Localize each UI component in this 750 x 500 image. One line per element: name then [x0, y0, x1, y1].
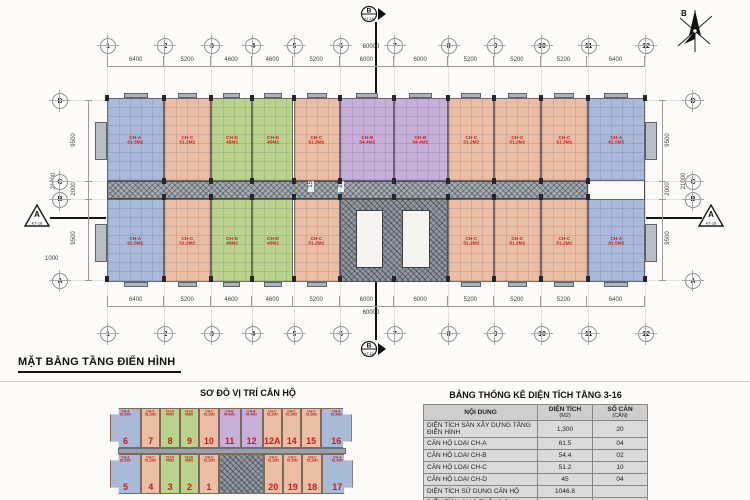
locator-unit: CH-D45M22 — [180, 454, 199, 494]
dim-line-vertical — [662, 100, 663, 280]
plan-unit: CH-C51.2M2 — [448, 199, 495, 282]
north-arrow-icon: B — [672, 6, 718, 56]
table-cell: 1046.8 — [538, 486, 593, 498]
svg-text:A: A — [34, 210, 40, 219]
dim-segment: 5200 — [541, 296, 588, 306]
balcony-tab — [124, 282, 148, 287]
locator-unit-area: 51.2M2 — [286, 413, 297, 416]
balcony-tab — [307, 93, 327, 98]
table-cell: 61.5 — [538, 438, 593, 450]
axis-circle-left: C — [52, 174, 68, 190]
unit-area: 61.5M2 — [128, 241, 144, 246]
locator-diagram: CH-A61.5M26CH-C51.2M27CH-D45M28CH-D45M29… — [102, 400, 364, 500]
svg-text:KT-18: KT-18 — [706, 221, 717, 226]
balcony-right-lower — [645, 224, 657, 262]
unit-label: CH-C51.2M2 — [309, 135, 325, 145]
locator-unit-number: 1 — [206, 483, 211, 492]
table-header-cell: NỘI DUNG — [424, 405, 538, 421]
locator-unit: CH-C51.2M219 — [283, 454, 302, 494]
locator-unit: CH-C51.2M220 — [264, 454, 283, 494]
locator-unit-number: 11 — [225, 437, 235, 446]
plan-unit: CH-C51.2M2 — [294, 199, 341, 282]
core-block — [340, 199, 448, 282]
balcony-tab — [264, 93, 281, 98]
locator-unit-type: CH-C51.2M2 — [287, 456, 298, 462]
axis-circle-left: B — [52, 192, 68, 208]
axis-gridline-v — [394, 52, 395, 328]
unit-label: CH-C51.2M2 — [510, 236, 526, 246]
column-mark — [392, 178, 396, 184]
unit-label: CH-D45M2 — [226, 135, 238, 145]
table-row: CĂN HỘ LOẠI CH-B54.402 — [424, 450, 648, 462]
unit-area: 54.4M2 — [413, 140, 429, 145]
column-mark — [250, 95, 254, 101]
dim-line-vertical — [88, 100, 89, 280]
table-cell: 02 — [593, 450, 648, 462]
locator-unit-type: CH-C51.2M2 — [306, 456, 317, 462]
elevator-shaft — [402, 210, 429, 268]
table-cell: 04 — [593, 438, 648, 450]
locator-unit-number: 7 — [148, 437, 153, 446]
locator-unit-type: CH-C51.2M2 — [145, 410, 156, 416]
unit-area: 51.2M2 — [556, 241, 572, 246]
drawing-sheet: 60000 60000 21000 21000 1000 1500 2700 3… — [0, 0, 750, 500]
axis-circle-bottom: 12 — [638, 326, 654, 342]
table-cell: CĂN HỘ LOẠI CH-A — [424, 438, 538, 450]
unit-area: 54.4M2 — [359, 140, 375, 145]
table-row: CĂN HỘ LOẠI CH-D4504 — [424, 474, 648, 486]
balcony-tab — [307, 282, 327, 287]
balcony-left-lower — [95, 224, 107, 262]
unit-area: 51.2M2 — [180, 241, 196, 246]
table-row: DIỆN TÍCH SÀN XÂY DỰNG TẦNG ĐIỂN HÌNH1,3… — [424, 421, 648, 438]
axis-circle-bottom: 4 — [245, 326, 261, 342]
dim-segment: 5200 — [448, 56, 495, 66]
locator-unit-area: 54.4M2 — [246, 413, 257, 416]
locator-unit-type: CH-C51.2M2 — [203, 456, 214, 462]
column-mark — [392, 276, 396, 282]
locator-unit: CH-A61.5M217 — [322, 454, 353, 494]
column-mark — [492, 194, 496, 200]
column-mark — [162, 95, 166, 101]
unit-label: CH-C51.2M2 — [463, 236, 479, 246]
stats-table-wrap: NỘI DUNGDIỆN TÍCH(M2)SỐ CĂN(CĂN)DIỆN TÍC… — [423, 404, 648, 500]
plan-unit: CH-C51.2M2 — [164, 199, 211, 282]
axis-circle-bottom: 2 — [157, 326, 173, 342]
section-marker-a-left: A KT-18 — [24, 204, 50, 228]
balcony-tab — [124, 93, 148, 98]
locator-unit-number: 6 — [123, 437, 128, 446]
locator-unit-area: 61.5M2 — [331, 413, 342, 416]
axis-gridline-v — [211, 52, 212, 328]
locator-unit-number: 12 — [247, 437, 257, 446]
table-cell: 1,300 — [538, 421, 593, 438]
plan-unit: CH-B54.4M2 — [340, 98, 394, 181]
axis-gridline-v — [448, 52, 449, 328]
plan-unit: CH-A61.5M2 — [588, 199, 645, 282]
dim-segment: 5200 — [448, 296, 495, 306]
table-header-cell: DIỆN TÍCH(M2) — [538, 405, 593, 421]
header-line1: NỘI DUNG — [427, 409, 534, 416]
table-cell: CĂN HỘ LOẠI CH-B — [424, 450, 538, 462]
table-cell: 54.4 — [538, 450, 593, 462]
dim-label-vertical: 9500 — [71, 226, 77, 250]
locator-unit-type: CH-A61.5M2 — [331, 410, 342, 416]
column-mark — [446, 276, 450, 282]
axis-circle-bottom: 9 — [487, 326, 503, 342]
locator-unit-type: CH-D45M2 — [166, 410, 174, 416]
locator-title: SƠ ĐỒ VỊ TRÍ CĂN HỘ — [128, 388, 368, 398]
locator-unit: CH-B54.4M211 — [219, 408, 241, 448]
locator-unit: CH-B54.4M212 — [241, 408, 263, 448]
unit-label: CH-C51.2M2 — [556, 135, 572, 145]
dim-segment: 6000 — [394, 296, 448, 306]
axis-gridline-v — [494, 52, 495, 328]
locator-unit: CH-A61.5M25 — [110, 454, 141, 494]
plan-unit: CH-A61.5M2 — [588, 98, 645, 181]
locator-unit-area: 45M2 — [166, 413, 174, 416]
locator-unit-type: CH-D45M2 — [185, 456, 193, 462]
table-row: DIỆN TÍCH SỬ DỤNG CĂN HỘ1046.8 — [424, 486, 648, 498]
table-row: CĂN HỘ LOẠI CH-A61.504 — [424, 438, 648, 450]
locator-unit: CH-C51.2M218 — [302, 454, 321, 494]
locator-unit-type: CH-C51.2M2 — [286, 410, 297, 416]
column-mark — [586, 95, 590, 101]
locator-unit-area: 45M2 — [185, 413, 193, 416]
unit-area: 51.2M2 — [463, 241, 479, 246]
axis-circle-bottom: 3 — [204, 326, 220, 342]
dim-tick — [85, 181, 92, 182]
locator-unit-type: CH-C51.2M2 — [203, 410, 214, 416]
dim-segment: 5200 — [164, 56, 211, 66]
locator-unit-area: 51.2M2 — [203, 413, 214, 416]
dim-aux-1000: 1000 — [44, 256, 59, 262]
axis-circle-right: D — [685, 93, 701, 109]
column-mark — [209, 95, 213, 101]
locator-unit: CH-C51.2M212A — [263, 408, 282, 448]
table-header-row: NỘI DUNGDIỆN TÍCH(M2)SỐ CĂN(CĂN) — [424, 405, 648, 421]
locator-unit-type: CH-B54.4M2 — [224, 410, 235, 416]
plan-unit: CH-D45M2 — [211, 199, 252, 282]
table-cell: DIỆN TÍCH SÀN XÂY DỰNG TẦNG ĐIỂN HÌNH — [424, 421, 538, 438]
locator-unit-area: 54.4M2 — [224, 413, 235, 416]
unit-label: CH-C51.2M2 — [180, 236, 196, 246]
dim-row-top: 6400520046004600520060006000520052005200… — [107, 56, 645, 67]
axis-gridline-v — [340, 52, 341, 328]
unit-area: 61.5M2 — [608, 140, 624, 145]
locator-unit-type: CH-C51.2M2 — [267, 410, 278, 416]
dim-segment: 4600 — [252, 56, 293, 66]
locator-unit-type: CH-D45M2 — [185, 410, 193, 416]
balcony-right-upper — [645, 122, 657, 160]
unit-area: 61.5M2 — [608, 241, 624, 246]
header-line1: SỐ CĂN — [596, 406, 644, 413]
table-cell: 45 — [538, 474, 593, 486]
column-mark — [209, 178, 213, 184]
locator-unit-area: 51.2M2 — [267, 413, 278, 416]
unit-label: CH-C51.2M2 — [556, 236, 572, 246]
plan-unit: CH-A61.5M2 — [107, 98, 164, 181]
table-cell: DIỆN TÍCH SỬ DỤNG CĂN HỘ — [424, 486, 538, 498]
balcony-tab — [604, 93, 628, 98]
locator-unit-area: 51.2M2 — [306, 459, 317, 462]
column-mark — [292, 95, 296, 101]
plan-unit: CH-C51.2M2 — [541, 98, 588, 181]
table-cell: 20 — [593, 421, 648, 438]
column-mark — [209, 276, 213, 282]
table-cell: 10 — [593, 462, 648, 474]
plan-unit: CH-C51.2M2 — [494, 98, 541, 181]
table-cell — [593, 486, 648, 498]
dim-segment: 6400 — [107, 296, 164, 306]
header-line2: (CĂN) — [596, 413, 644, 419]
dim-label-vertical: 9500 — [665, 226, 671, 250]
unit-label: CH-B54.4M2 — [359, 135, 375, 145]
elevator-shaft — [356, 210, 383, 268]
locator-unit-number: 20 — [268, 483, 278, 492]
unit-label: CH-C51.2M2 — [180, 135, 196, 145]
locator-unit-number: 19 — [288, 483, 298, 492]
column-mark — [643, 95, 647, 101]
locator-unit-area: 51.2M2 — [268, 459, 279, 462]
balcony-tab — [409, 93, 432, 98]
unit-label: CH-A61.5M2 — [608, 135, 624, 145]
locator-unit-area: 51.2M2 — [305, 413, 316, 416]
balcony-tab — [356, 93, 379, 98]
locator-unit-type: CH-D45M2 — [166, 456, 174, 462]
dim-tick — [659, 100, 666, 101]
locator-unit-number: 2 — [187, 483, 192, 492]
locator-unit-area: 61.5M2 — [120, 413, 131, 416]
dim-segment: 5200 — [541, 56, 588, 66]
locator-unit: CH-C51.2M214 — [282, 408, 301, 448]
locator-unit-area: 61.5M2 — [120, 459, 131, 462]
locator-unit-number: 18 — [307, 483, 317, 492]
stats-table: NỘI DUNGDIỆN TÍCH(M2)SỐ CĂN(CĂN)DIỆN TÍC… — [423, 404, 648, 500]
table-title: BẢNG THỐNG KÊ DIỆN TÍCH TẦNG 3-16 — [423, 390, 648, 400]
plan-unit: CH-C51.2M2 — [294, 98, 341, 181]
balcony-tab — [178, 93, 198, 98]
locator-unit: CH-C51.2M27 — [141, 408, 160, 448]
dim-label-vertical: 9500 — [71, 128, 77, 152]
unit-label: CH-C51.2M2 — [309, 236, 325, 246]
axis-circle-top: 7 — [387, 38, 403, 54]
unit-area: 45M2 — [267, 241, 279, 246]
plan-unit: CH-C51.2M2 — [448, 98, 495, 181]
column-mark — [250, 276, 254, 282]
column-mark — [105, 276, 109, 282]
section-line-a-right — [646, 217, 702, 219]
unit-area: 51.2M2 — [309, 241, 325, 246]
column-mark — [539, 194, 543, 200]
column-mark — [105, 95, 109, 101]
table-header-cell: SỐ CĂN(CĂN) — [593, 405, 648, 421]
unit-label: CH-A61.5M2 — [608, 236, 624, 246]
plan-unit: CH-D45M2 — [252, 98, 293, 181]
locator-unit: CH-C51.2M210 — [199, 408, 218, 448]
dim-segment: 6400 — [107, 56, 164, 66]
column-mark — [392, 194, 396, 200]
svg-text:KT-18: KT-18 — [32, 221, 43, 226]
column-mark — [492, 95, 496, 101]
unit-label: CH-A61.5M2 — [128, 236, 144, 246]
column-mark — [292, 276, 296, 282]
section-marker-a-right: A KT-18 — [698, 204, 724, 228]
axis-circle-top: 1 — [100, 38, 116, 54]
column-mark — [338, 95, 342, 101]
column-mark — [539, 95, 543, 101]
section-marker-b-bottom: B KT-18 — [360, 340, 388, 358]
axis-circle-top: 2 — [157, 38, 173, 54]
locator-unit-type: CH-A61.5M2 — [332, 456, 343, 462]
table-body: DIỆN TÍCH SÀN XÂY DỰNG TẦNG ĐIỂN HÌNH1,3… — [424, 421, 648, 500]
column-mark — [338, 194, 342, 200]
locator-unit-area: 45M2 — [166, 459, 174, 462]
plan-unit: CH-C51.2M2 — [164, 98, 211, 181]
axis-gridline-v — [541, 52, 542, 328]
balcony-tab — [508, 282, 528, 287]
locator-unit-type: CH-C51.2M2 — [305, 410, 316, 416]
unit-area: 45M2 — [267, 140, 279, 145]
locator-unit: CH-C51.2M24 — [141, 454, 160, 494]
dim-segment: 5200 — [293, 56, 340, 66]
column-mark — [392, 95, 396, 101]
axis-circle-top: 4 — [245, 38, 261, 54]
axis-circle-top: 8 — [441, 38, 457, 54]
axis-circle-right: A — [685, 273, 701, 289]
column-mark — [446, 178, 450, 184]
locator-unit: CH-A61.5M26 — [110, 408, 141, 448]
svg-text:B: B — [367, 343, 372, 350]
table-cell: CĂN HỘ LOẠI CH-D — [424, 474, 538, 486]
dim-segment: 5200 — [494, 56, 541, 66]
locator-unit — [219, 454, 264, 494]
axis-circle-bottom: 11 — [581, 326, 597, 342]
unit-label: CH-D45M2 — [267, 236, 279, 246]
locator-unit-number: 16 — [331, 437, 341, 446]
dim-segment: 6400 — [587, 296, 644, 306]
plan-unit: CH-A61.5M2 — [107, 199, 164, 282]
axis-circle-bottom: 7 — [387, 326, 403, 342]
locator-unit-number: 4 — [148, 483, 153, 492]
axis-gridline-v — [164, 52, 165, 328]
plan-unit: CH-D45M2 — [211, 98, 252, 181]
column-mark — [338, 178, 342, 184]
unit-label: CH-C51.2M2 — [510, 135, 526, 145]
column-mark — [539, 276, 543, 282]
section-line-b-bottom — [375, 282, 377, 340]
locator-unit-type: CH-C51.2M2 — [145, 456, 156, 462]
unit-area: 51.2M2 — [556, 140, 572, 145]
panel-divider — [0, 381, 750, 382]
balcony-tab — [554, 93, 574, 98]
locator-unit-area: 51.2M2 — [287, 459, 298, 462]
column-mark — [586, 194, 590, 200]
axis-circle-right: B — [685, 192, 701, 208]
corridor — [107, 181, 588, 199]
dim-segment: 5200 — [293, 296, 340, 306]
axis-circle-top: 9 — [487, 38, 503, 54]
dim-label-vertical: 2000 — [71, 177, 77, 201]
balcony-tab — [461, 282, 481, 287]
column-mark — [338, 276, 342, 282]
unit-label: CH-C51.2M2 — [463, 135, 479, 145]
section-line-a-left — [50, 217, 106, 219]
locator-unit-number: 10 — [204, 437, 214, 446]
dim-tick — [659, 280, 666, 281]
locator-unit-number: 15 — [306, 437, 316, 446]
axis-circle-bottom: 8 — [441, 326, 457, 342]
locator-unit: CH-D45M28 — [160, 408, 179, 448]
header-line2: (M2) — [541, 413, 589, 419]
unit-area: 51.2M2 — [309, 140, 325, 145]
column-mark — [586, 276, 590, 282]
balcony-tab — [264, 282, 281, 287]
unit-area: 51.2M2 — [510, 241, 526, 246]
balcony-tab — [508, 93, 528, 98]
column-mark — [586, 178, 590, 184]
column-mark — [446, 194, 450, 200]
locator-unit-number: 3 — [168, 483, 173, 492]
dim-segment: 4600 — [252, 296, 293, 306]
dim-segment: 4600 — [211, 56, 252, 66]
locator-unit-number: 5 — [123, 483, 128, 492]
dim-segment: 6400 — [587, 56, 644, 66]
axis-circle-right: C — [685, 174, 701, 190]
column-mark — [292, 178, 296, 184]
table-head: NỘI DUNGDIỆN TÍCH(M2)SỐ CĂN(CĂN) — [424, 405, 648, 421]
dim-segment: 6000 — [340, 56, 394, 66]
locator-unit: CH-D45M29 — [180, 408, 199, 448]
column-mark — [250, 194, 254, 200]
axis-circle-top: 6 — [333, 38, 349, 54]
column-mark — [250, 178, 254, 184]
axis-circle-bottom: 5 — [287, 326, 303, 342]
unit-area: 45M2 — [226, 241, 238, 246]
dim-tick — [85, 199, 92, 200]
locator-unit-type: CH-B54.4M2 — [246, 410, 257, 416]
locator-unit-number: 12A — [264, 437, 281, 446]
unit-area: 61.5M2 — [128, 140, 144, 145]
plan-title: MẶT BẰNG TẦNG ĐIỂN HÌNH — [18, 356, 175, 368]
dim-segment: 6000 — [340, 296, 394, 306]
dim-total-bottom: 60000 — [336, 310, 406, 316]
locator-unit-area: 61.5M2 — [332, 459, 343, 462]
column-mark — [162, 194, 166, 200]
axis-circle-left: D — [52, 93, 68, 109]
plan-unit: CH-C51.2M2 — [541, 199, 588, 282]
column-mark — [162, 178, 166, 184]
locator-unit-area: 51.2M2 — [145, 413, 156, 416]
dim-row-bottom: 6400520046004600520060006000520052005200… — [107, 296, 645, 307]
locator-unit-area: 51.2M2 — [145, 459, 156, 462]
axis-circle-left: A — [52, 273, 68, 289]
unit-area: 45M2 — [226, 140, 238, 145]
table-cell: 04 — [593, 474, 648, 486]
locator-unit-type: CH-C51.2M2 — [268, 456, 279, 462]
table-cell: CĂN HỘ LOẠI CH-C — [424, 462, 538, 474]
table-cell: 51.2 — [538, 462, 593, 474]
column-mark — [292, 194, 296, 200]
locator-unit-type: CH-A61.5M2 — [120, 410, 131, 416]
dim-segment: 4600 — [211, 296, 252, 306]
locator-unit-number: 14 — [287, 437, 297, 446]
column-mark — [162, 276, 166, 282]
locator-unit-number: 17 — [332, 483, 342, 492]
dim-segment: 6000 — [394, 56, 448, 66]
svg-text:B: B — [367, 8, 372, 15]
axis-gridline-v — [588, 52, 589, 328]
